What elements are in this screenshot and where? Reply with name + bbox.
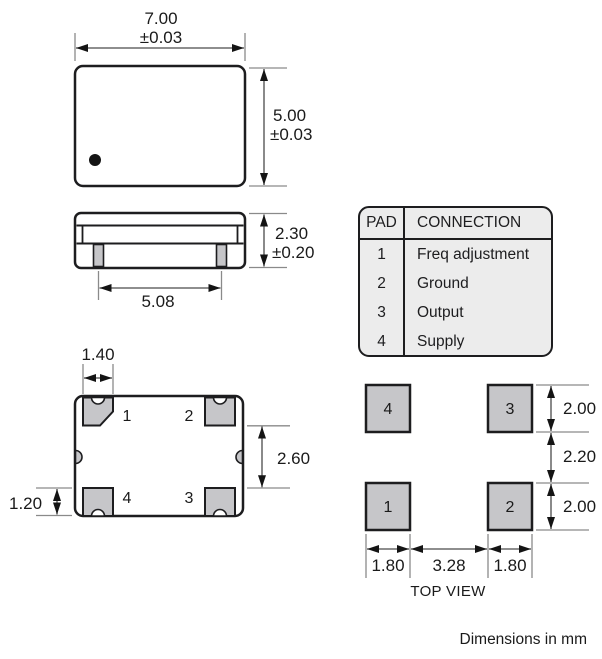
table-row: 1 Freq adjustment xyxy=(360,240,551,269)
dim-land-pad-gap: 3.28 xyxy=(432,556,465,575)
table-cell-connection: Supply xyxy=(405,327,551,356)
dim-pkg-width-tol: ±0.03 xyxy=(140,28,182,47)
table-cell-pad: 4 xyxy=(360,327,405,356)
dim-land-pad-width-left: 1.80 xyxy=(371,556,404,575)
bottom-pad-3-label: 3 xyxy=(185,490,194,507)
table-row: 2 Ground xyxy=(360,269,551,298)
table-row: 4 Supply xyxy=(360,327,551,356)
table-cell-pad: 3 xyxy=(360,298,405,327)
castellation-notch-pad2 xyxy=(214,398,227,405)
bottom-pad-1-label: 1 xyxy=(123,408,132,425)
package-side-view: 2.30 ±0.20 5.08 xyxy=(75,213,314,311)
package-top-view: 7.00 ±0.03 5.00 ±0.03 xyxy=(75,9,312,186)
bottom-pad-4-label: 4 xyxy=(123,490,132,507)
land-pad-2-label: 2 xyxy=(506,499,515,516)
pad-connection-table: PAD CONNECTION 1 Freq adjustment 2 Groun… xyxy=(358,206,553,357)
table-row: 3 Output xyxy=(360,298,551,327)
side-castellation-right xyxy=(236,451,243,464)
package-body-outline xyxy=(75,66,245,186)
table-header-pad: PAD xyxy=(360,208,405,238)
dim-side-height-tol: ±0.20 xyxy=(272,243,314,262)
bottom-pad-2-label: 2 xyxy=(185,408,194,425)
castellation-notch-pad3 xyxy=(214,510,227,516)
land-pattern-top-view: 4 3 1 2 2.00 2.20 2.00 1.80 3.28 1.80 TO… xyxy=(366,385,596,600)
top-view-caption: TOP VIEW xyxy=(410,583,486,600)
side-castellation-left xyxy=(76,451,83,464)
land-pad-1-label: 1 xyxy=(384,499,393,516)
dim-land-pad-height-bottom: 2.00 xyxy=(563,497,596,516)
dim-pad-span-value: 5.08 xyxy=(141,292,174,311)
dim-land-pad-width-right: 1.80 xyxy=(493,556,526,575)
table-header-connection: CONNECTION xyxy=(405,208,551,238)
dim-pad-width-value: 1.40 xyxy=(81,345,114,364)
dimensions-note: Dimensions in mm xyxy=(460,631,587,648)
table-cell-pad: 1 xyxy=(360,240,405,269)
table-header-row: PAD CONNECTION xyxy=(360,208,551,240)
table-cell-connection: Freq adjustment xyxy=(405,240,551,269)
dim-pad-height-value: 1.20 xyxy=(9,494,42,513)
pin1-marker-dot xyxy=(89,154,101,166)
dim-land-row-gap: 2.20 xyxy=(563,447,596,466)
dim-pkg-width-value: 7.00 xyxy=(144,9,177,28)
side-pad-right xyxy=(217,245,227,267)
package-bottom-view: 1 2 4 3 1.40 2.60 1.20 xyxy=(9,345,310,516)
dim-pad-vgap-value: 2.60 xyxy=(277,449,310,468)
table-cell-pad: 2 xyxy=(360,269,405,298)
dim-land-pad-height-top: 2.00 xyxy=(563,399,596,418)
table-cell-connection: Ground xyxy=(405,269,551,298)
land-pad-4-label: 4 xyxy=(384,401,393,418)
castellation-notch-pad1 xyxy=(92,398,105,405)
castellation-notch-pad4 xyxy=(92,510,105,516)
side-pad-left xyxy=(94,245,104,267)
drawing-canvas: 7.00 ±0.03 5.00 ±0.03 2.30 ±0.20 5.08 xyxy=(0,0,602,659)
table-cell-connection: Output xyxy=(405,298,551,327)
dim-side-height-value: 2.30 xyxy=(275,224,308,243)
dim-pkg-height-tol: ±0.03 xyxy=(270,125,312,144)
pad-width-extension-lines xyxy=(83,364,113,394)
land-pad-3-label: 3 xyxy=(506,401,515,418)
dim-pkg-height-value: 5.00 xyxy=(273,106,306,125)
